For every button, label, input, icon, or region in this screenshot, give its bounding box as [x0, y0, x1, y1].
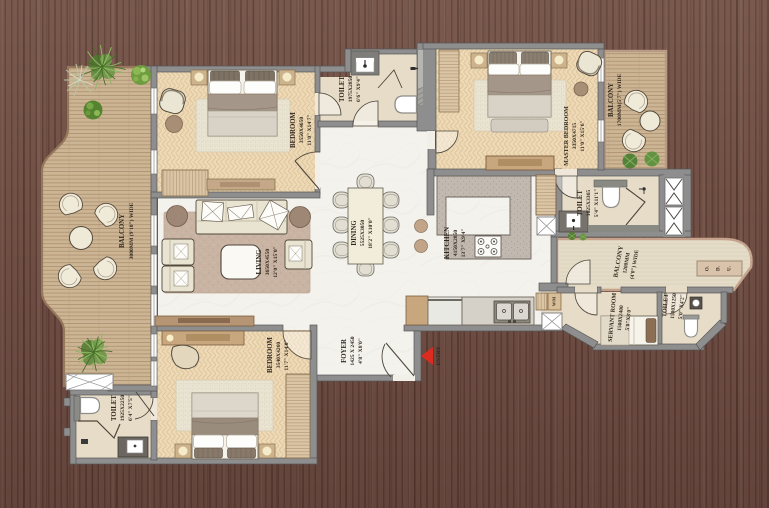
svg-text:BEDROOM: BEDROOM — [267, 336, 274, 372]
svg-text:1625X3365: 1625X3365 — [586, 190, 592, 217]
svg-text:O.: O. — [706, 265, 711, 271]
svg-text:4150X2850: 4150X2850 — [453, 230, 459, 257]
svg-text:TOILET: TOILET — [111, 395, 118, 421]
svg-text:ENTRY: ENTRY — [436, 346, 442, 365]
svg-text:5525X3050: 5525X3050 — [360, 220, 366, 247]
svg-text:4'8" X8'0": 4'8" X8'0" — [358, 338, 364, 364]
svg-text:3540X4260: 3540X4260 — [276, 342, 282, 369]
svg-text:W/M: W/M — [552, 297, 557, 306]
svg-text:5'4" X11'1": 5'4" X11'1" — [594, 189, 600, 217]
svg-text:3000MM (9'10") WIDE: 3000MM (9'10") WIDE — [128, 202, 135, 259]
svg-text:TOILET: TOILET — [339, 76, 346, 102]
svg-text:3550X4650: 3550X4650 — [299, 117, 305, 144]
svg-text:6'6" X9'4": 6'6" X9'4" — [356, 76, 362, 102]
svg-text:11'7" X14'0": 11'7" X14'0" — [284, 339, 290, 370]
svg-text:LIVING: LIVING — [256, 249, 263, 275]
svg-text:BALCONY: BALCONY — [608, 83, 615, 117]
svg-text:11'0" X14'7": 11'0" X14'7" — [307, 114, 313, 145]
svg-text:3650X4550: 3650X4550 — [265, 249, 271, 276]
svg-text:U.: U. — [728, 265, 733, 271]
svg-text:6'4" X7'5": 6'4" X7'5" — [128, 395, 134, 421]
svg-text:12'0" X15'0": 12'0" X15'0" — [273, 246, 279, 278]
svg-text:D.: D. — [717, 265, 722, 271]
svg-text:DINING: DINING — [351, 220, 358, 246]
svg-text:1975X2850: 1975X2850 — [348, 76, 354, 103]
svg-text:1925X2250: 1925X2250 — [120, 395, 126, 422]
svg-text:3350X4715: 3350X4715 — [572, 123, 578, 150]
svg-text:BALCONY: BALCONY — [119, 214, 126, 248]
svg-text:MASTER BEDROOM: MASTER BEDROOM — [564, 106, 570, 166]
svg-text:1425 X 2450: 1425 X 2450 — [350, 336, 356, 365]
svg-text:TOILET: TOILET — [577, 190, 584, 216]
svg-text:KITCHEN: KITCHEN — [444, 227, 451, 259]
svg-text:11'0" X15'6": 11'0" X15'6" — [580, 120, 586, 151]
svg-text:FOYER: FOYER — [341, 339, 348, 363]
svg-text:BEDROOM: BEDROOM — [290, 111, 297, 147]
svg-text:13'7" X9'4": 13'7" X9'4" — [461, 229, 467, 258]
svg-text:1700MM(5'7") WIDE: 1700MM(5'7") WIDE — [616, 73, 623, 126]
svg-text:18'2" X10'0": 18'2" X10'0" — [368, 217, 374, 249]
